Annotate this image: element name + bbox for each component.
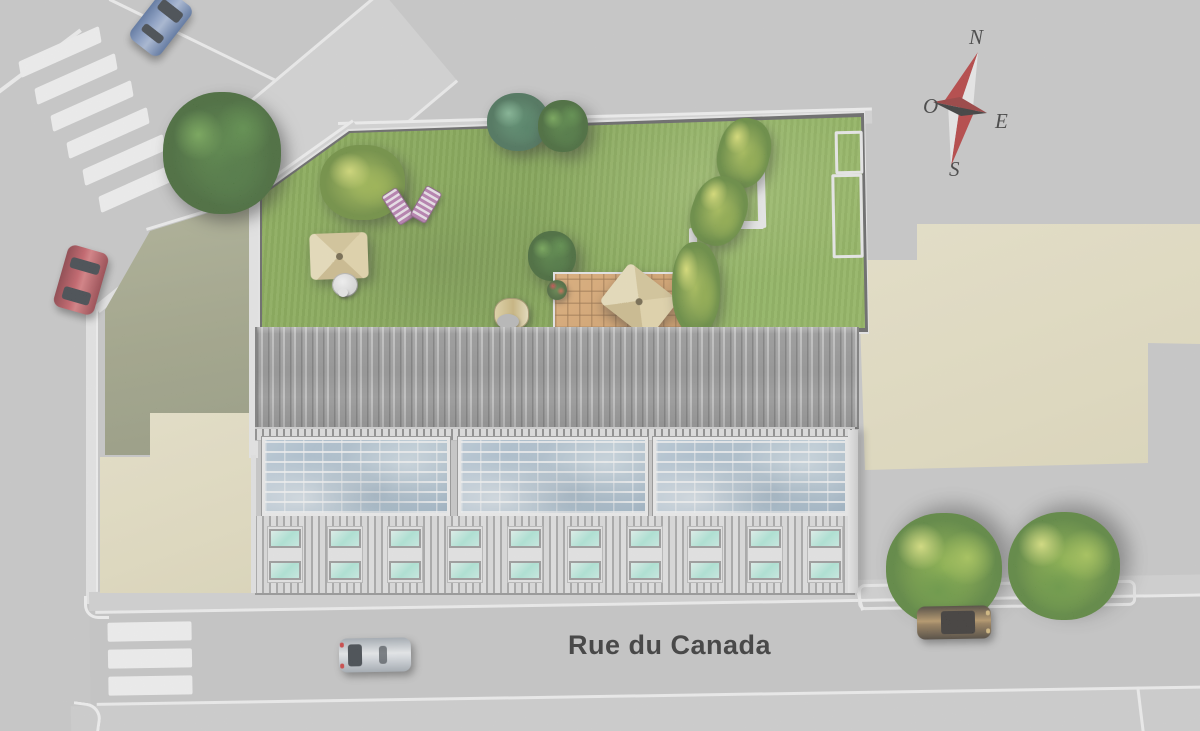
hedge-lower: [672, 242, 720, 334]
solar-panel-2: [458, 437, 648, 516]
compass-rose: N O E S: [915, 18, 1025, 183]
window-pair: [328, 527, 362, 582]
compass-south-label: S: [949, 157, 960, 181]
compass-east-label: E: [994, 109, 1008, 133]
window: [509, 529, 541, 548]
window-pair: [808, 527, 842, 582]
metal-roof: [255, 327, 859, 429]
window: [569, 561, 601, 580]
garden-parasol: [309, 232, 369, 280]
street-tree-bottom-2: [1008, 512, 1120, 620]
solar-panel-1: [262, 437, 450, 516]
window: [389, 529, 421, 548]
crosswalk-stripe: [107, 621, 191, 641]
window-pair: [748, 527, 782, 582]
roof-skylight-outline: [831, 174, 863, 259]
window: [749, 529, 781, 548]
street-name-label: Rue du Canada: [568, 630, 771, 661]
road-corner-topleft: [84, 596, 109, 619]
street-facade: [255, 516, 855, 595]
window: [629, 529, 661, 548]
window: [449, 529, 481, 548]
window: [809, 529, 841, 548]
window: [509, 561, 541, 580]
car-bronze: [917, 605, 992, 639]
crosswalk-stripe: [108, 675, 192, 695]
site-plan: N O E S Rue du Canada: [0, 0, 1200, 731]
window-pair: [268, 527, 302, 582]
garden-vase: [338, 288, 348, 297]
window: [749, 561, 781, 580]
building-right-wall: [848, 430, 858, 593]
window: [389, 561, 421, 580]
sand-building-right: [855, 220, 1200, 472]
road-edge-line-diagonal: [109, 0, 290, 88]
window-pair: [568, 527, 602, 582]
window-pair: [688, 527, 722, 582]
window: [629, 561, 661, 580]
roof-skylight-outline: [835, 131, 864, 174]
car-blue: [127, 0, 195, 59]
curb-strip-left: [86, 306, 98, 604]
window: [689, 529, 721, 548]
window: [809, 561, 841, 580]
compass-west-label: O: [923, 94, 938, 118]
window: [569, 529, 601, 548]
window-pair: [388, 527, 422, 582]
compass-north-label: N: [968, 25, 984, 49]
car-silver: [339, 637, 412, 672]
flower-pot: [547, 280, 567, 300]
solar-panel-3: [653, 437, 848, 516]
window: [329, 561, 361, 580]
building-left-wall: [251, 455, 256, 593]
crosswalk-stripe: [108, 648, 192, 668]
window-pair: [628, 527, 662, 582]
window: [329, 529, 361, 548]
window: [689, 561, 721, 580]
window-pair: [448, 527, 482, 582]
street-tree-topleft: [163, 92, 281, 214]
sidewalk-tree-right: [538, 100, 588, 152]
window: [269, 561, 301, 580]
window: [449, 561, 481, 580]
window-pair: [508, 527, 542, 582]
window: [269, 529, 301, 548]
